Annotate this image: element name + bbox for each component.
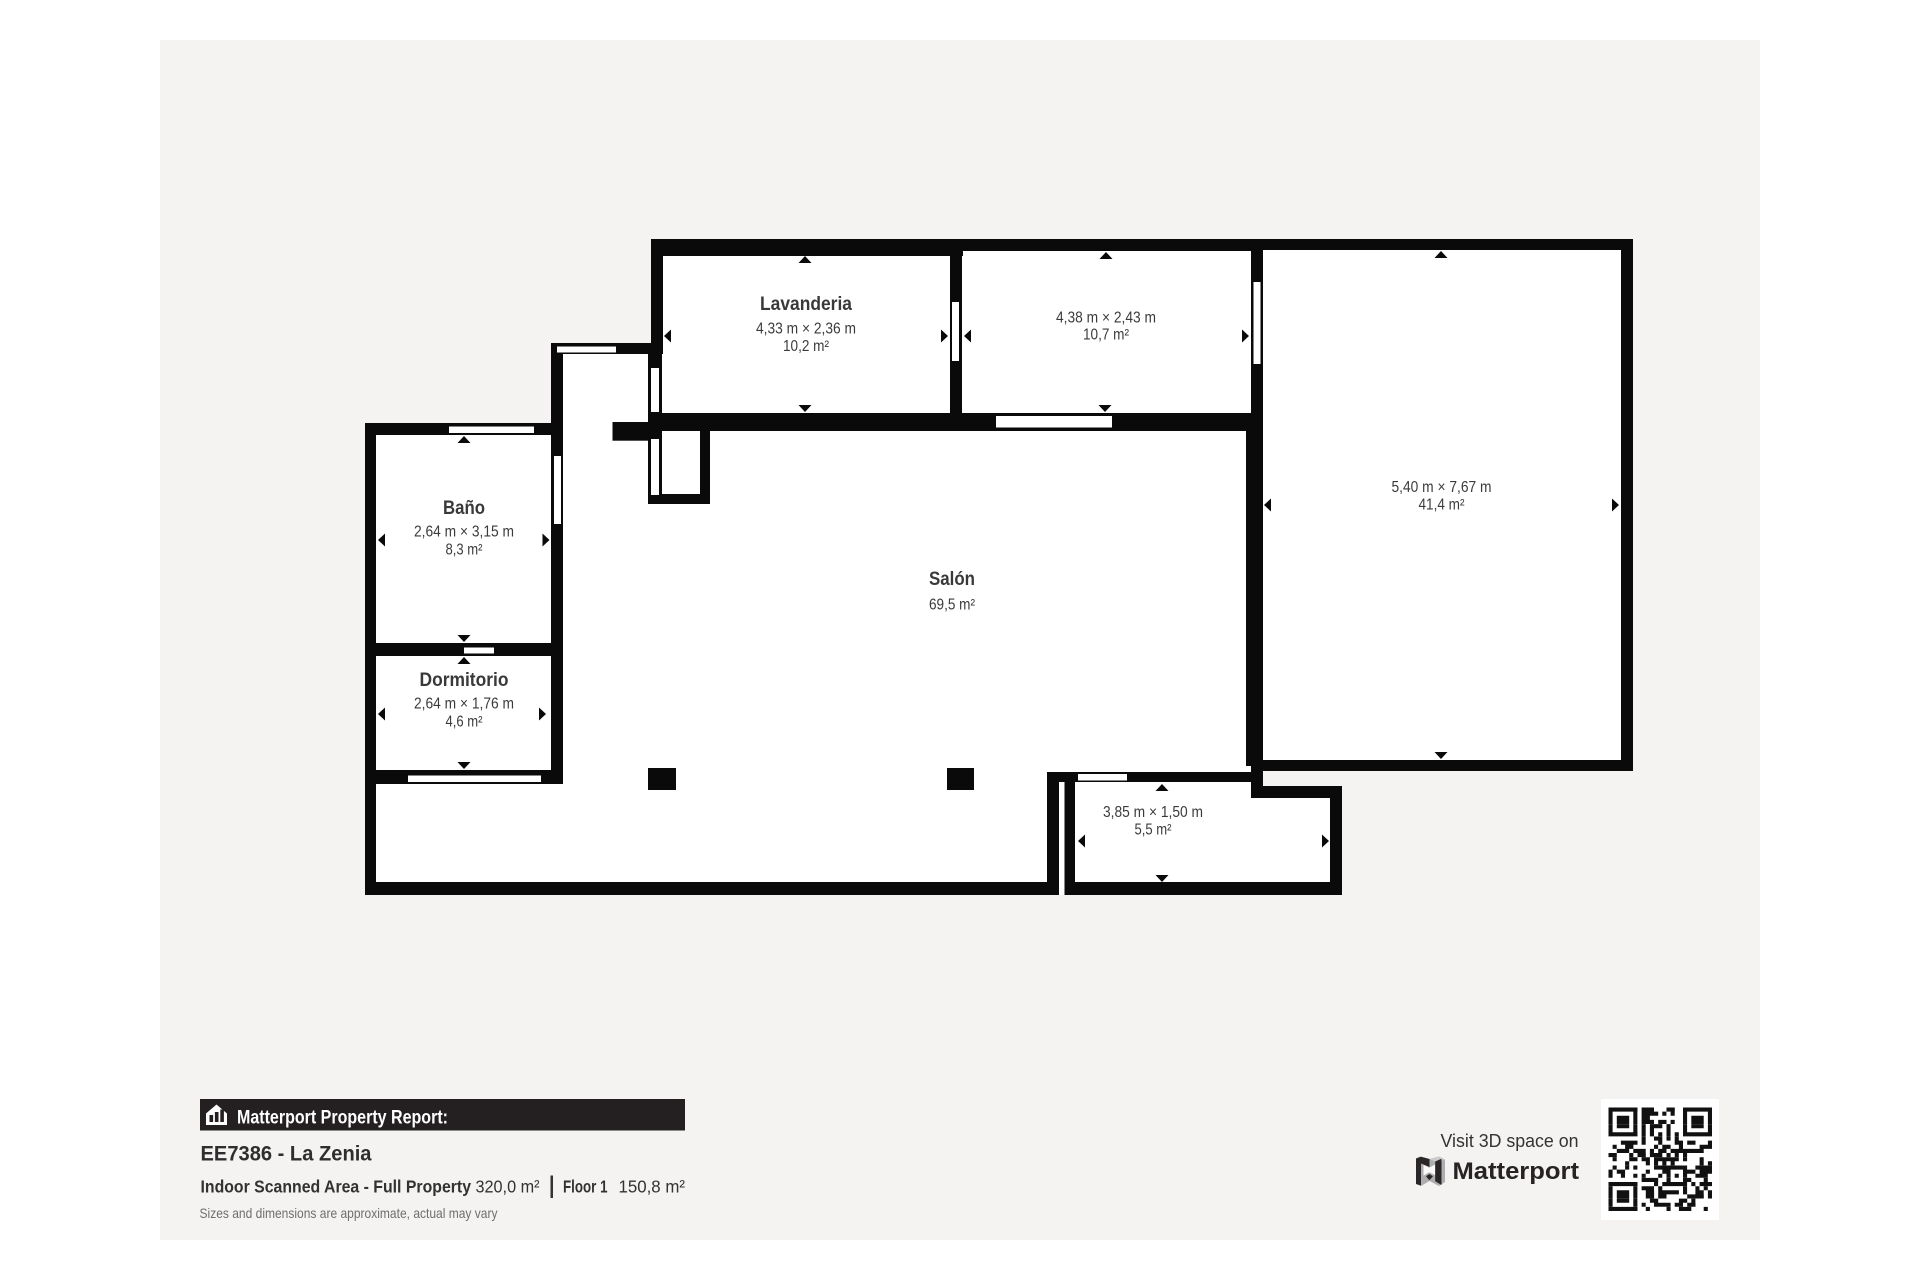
svg-text:EE7386 - La Zenia: EE7386 - La Zenia [201, 1142, 373, 1166]
svg-text:8,3 m²: 8,3 m² [446, 542, 483, 559]
svg-text:Indoor Scanned Area - Full Pro: Indoor Scanned Area - Full Property [201, 1176, 472, 1196]
svg-text:Lavanderia: Lavanderia [760, 293, 852, 315]
svg-text:5,40 m × 7,67 m: 5,40 m × 7,67 m [1392, 479, 1492, 496]
svg-text:4,33 m × 2,36 m: 4,33 m × 2,36 m [756, 321, 856, 338]
svg-text:Floor 1: Floor 1 [563, 1176, 608, 1196]
svg-text:Visit 3D space on: Visit 3D space on [1441, 1130, 1579, 1151]
svg-text:41,4 m²: 41,4 m² [1419, 496, 1465, 513]
svg-text:4,6 m²: 4,6 m² [446, 714, 483, 731]
svg-text:320,0 m²: 320,0 m² [476, 1176, 540, 1196]
svg-text:10,7 m²: 10,7 m² [1083, 327, 1129, 344]
svg-text:3,85 m × 1,50 m: 3,85 m × 1,50 m [1103, 804, 1203, 821]
svg-text:Matterport Property Report:: Matterport Property Report: [237, 1107, 448, 1129]
svg-text:4,38 m × 2,43 m: 4,38 m × 2,43 m [1056, 310, 1156, 327]
svg-text:Baño: Baño [443, 497, 485, 519]
svg-text:10,2 m²: 10,2 m² [783, 338, 829, 355]
svg-text:69,5 m²: 69,5 m² [929, 597, 975, 614]
svg-text:150,8 m²: 150,8 m² [619, 1176, 686, 1196]
svg-text:Dormitorio: Dormitorio [420, 669, 509, 691]
svg-text:Salón: Salón [929, 568, 975, 590]
svg-text:2,64 m × 3,15 m: 2,64 m × 3,15 m [414, 523, 514, 540]
svg-text:5,5 m²: 5,5 m² [1135, 822, 1172, 839]
svg-text:2,64 m × 1,76 m: 2,64 m × 1,76 m [414, 696, 514, 713]
svg-text:Sizes and dimensions are appro: Sizes and dimensions are approximate, ac… [200, 1205, 498, 1221]
svg-text:Matterport: Matterport [1453, 1158, 1580, 1185]
